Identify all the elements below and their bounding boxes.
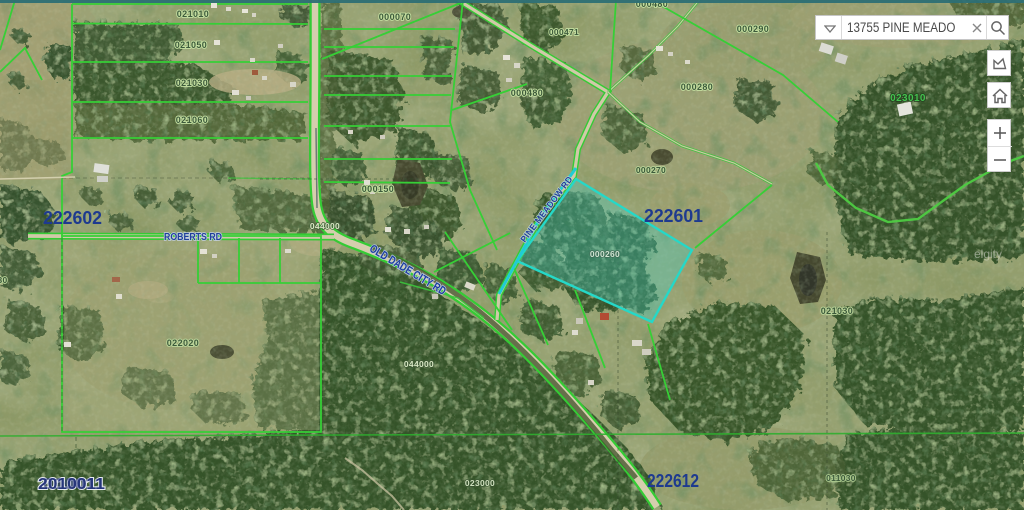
svg-text:000290: 000290 <box>737 24 769 34</box>
svg-text:000270: 000270 <box>636 165 666 175</box>
svg-text:030: 030 <box>0 275 8 285</box>
svg-text:000260: 000260 <box>590 249 620 259</box>
svg-text:000150: 000150 <box>362 184 394 194</box>
svg-text:222601: 222601 <box>644 206 703 226</box>
svg-text:000280: 000280 <box>681 82 713 92</box>
svg-text:022020: 022020 <box>167 338 199 348</box>
svg-text:elgity: elgity <box>974 247 1002 261</box>
svg-text:023010: 023010 <box>890 93 926 104</box>
svg-text:021010: 021010 <box>177 9 209 19</box>
svg-text:010011: 010011 <box>43 476 105 493</box>
svg-text:021030: 021030 <box>821 306 853 316</box>
svg-text:222602: 222602 <box>43 208 102 228</box>
svg-text:044000: 044000 <box>310 221 340 231</box>
svg-text:000471: 000471 <box>549 27 579 37</box>
svg-text:021050: 021050 <box>175 40 207 50</box>
svg-text:000480: 000480 <box>511 88 543 98</box>
svg-text:011030: 011030 <box>826 473 856 483</box>
svg-text:021030: 021030 <box>176 78 208 88</box>
svg-text:044000: 044000 <box>404 359 434 369</box>
svg-text:021060: 021060 <box>176 115 208 125</box>
svg-text:023000: 023000 <box>465 478 495 488</box>
svg-text:ROBERTS RD: ROBERTS RD <box>164 232 222 243</box>
svg-text:000070: 000070 <box>379 12 411 22</box>
svg-text:222612: 222612 <box>647 471 699 491</box>
